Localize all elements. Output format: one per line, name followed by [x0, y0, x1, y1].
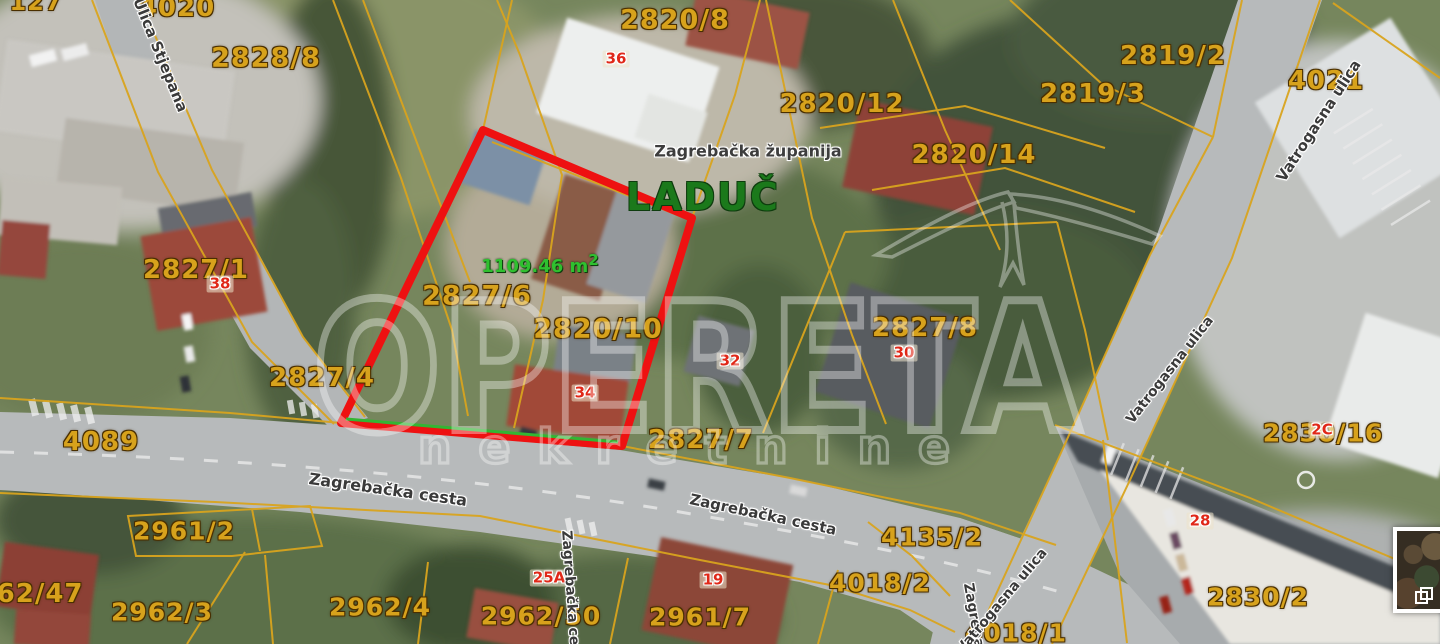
parcel-label-2827-6: 2827/6 [422, 283, 532, 310]
parcel-label-2827-7: 2827/7 [648, 427, 754, 453]
parcel-area-value: 1109.46 m [481, 256, 588, 277]
parcel-label-2830-2: 2830/2 [1207, 585, 1309, 610]
parcel-label-2819-2: 2819/2 [1120, 43, 1226, 69]
house-number-2C: 2C [1308, 422, 1335, 439]
parcel-label-2962-50: 2962/50 [481, 604, 602, 629]
house-number-38: 38 [207, 276, 234, 293]
parcel-label-2961-7: 2961/7 [649, 605, 751, 630]
parcel-label-4089: 4089 [63, 429, 139, 455]
inset-minimap[interactable] [1393, 527, 1440, 613]
house-number-30: 30 [891, 345, 918, 362]
house-number-34: 34 [572, 385, 599, 402]
layers-icon [1415, 587, 1435, 607]
place-label: LADUČ [626, 175, 780, 219]
parcel-label-2962-3: 2962/3 [111, 600, 213, 625]
parcel-area-label: 1109.46 m2 [481, 251, 598, 277]
parcel-label-2962-47: 2962/47 [0, 581, 84, 607]
parcel-label-2819-3: 2819/3 [1040, 81, 1146, 107]
parcel-label-2827-8: 2827/8 [872, 315, 978, 341]
house-number-19: 19 [700, 572, 727, 589]
parcel-area-exponent: 2 [588, 251, 598, 269]
parcel-label-2962-4: 2962/4 [329, 595, 431, 620]
house-number-32: 32 [717, 353, 744, 370]
parcel-label-4135-2: 4135/2 [881, 525, 983, 550]
parcel-label-2820-10: 2820/10 [533, 316, 663, 343]
parcel-label-127: 127 [9, 0, 62, 14]
parcel-label-2820-12: 2820/12 [779, 91, 904, 117]
house-number-28: 28 [1187, 513, 1214, 530]
parcel-label-2827-4: 2827/4 [269, 365, 375, 391]
parcel-label-4018-2: 4018/2 [829, 571, 931, 596]
highlight-parcel-outline [0, 0, 1440, 644]
region-label: Zagrebačka županija [654, 142, 841, 161]
parcel-label-2820-8: 2820/8 [620, 7, 730, 34]
house-number-36: 36 [603, 51, 630, 68]
parcel-label-2820-14: 2820/14 [911, 142, 1036, 168]
parcel-label-2828-8: 2828/8 [211, 45, 321, 72]
parcel-label-2961-2: 2961/2 [133, 519, 235, 544]
cadastral-map-canvas[interactable]: 127 4020 2828/8 2820/8 2819/2 2819/3 402… [0, 0, 1440, 644]
